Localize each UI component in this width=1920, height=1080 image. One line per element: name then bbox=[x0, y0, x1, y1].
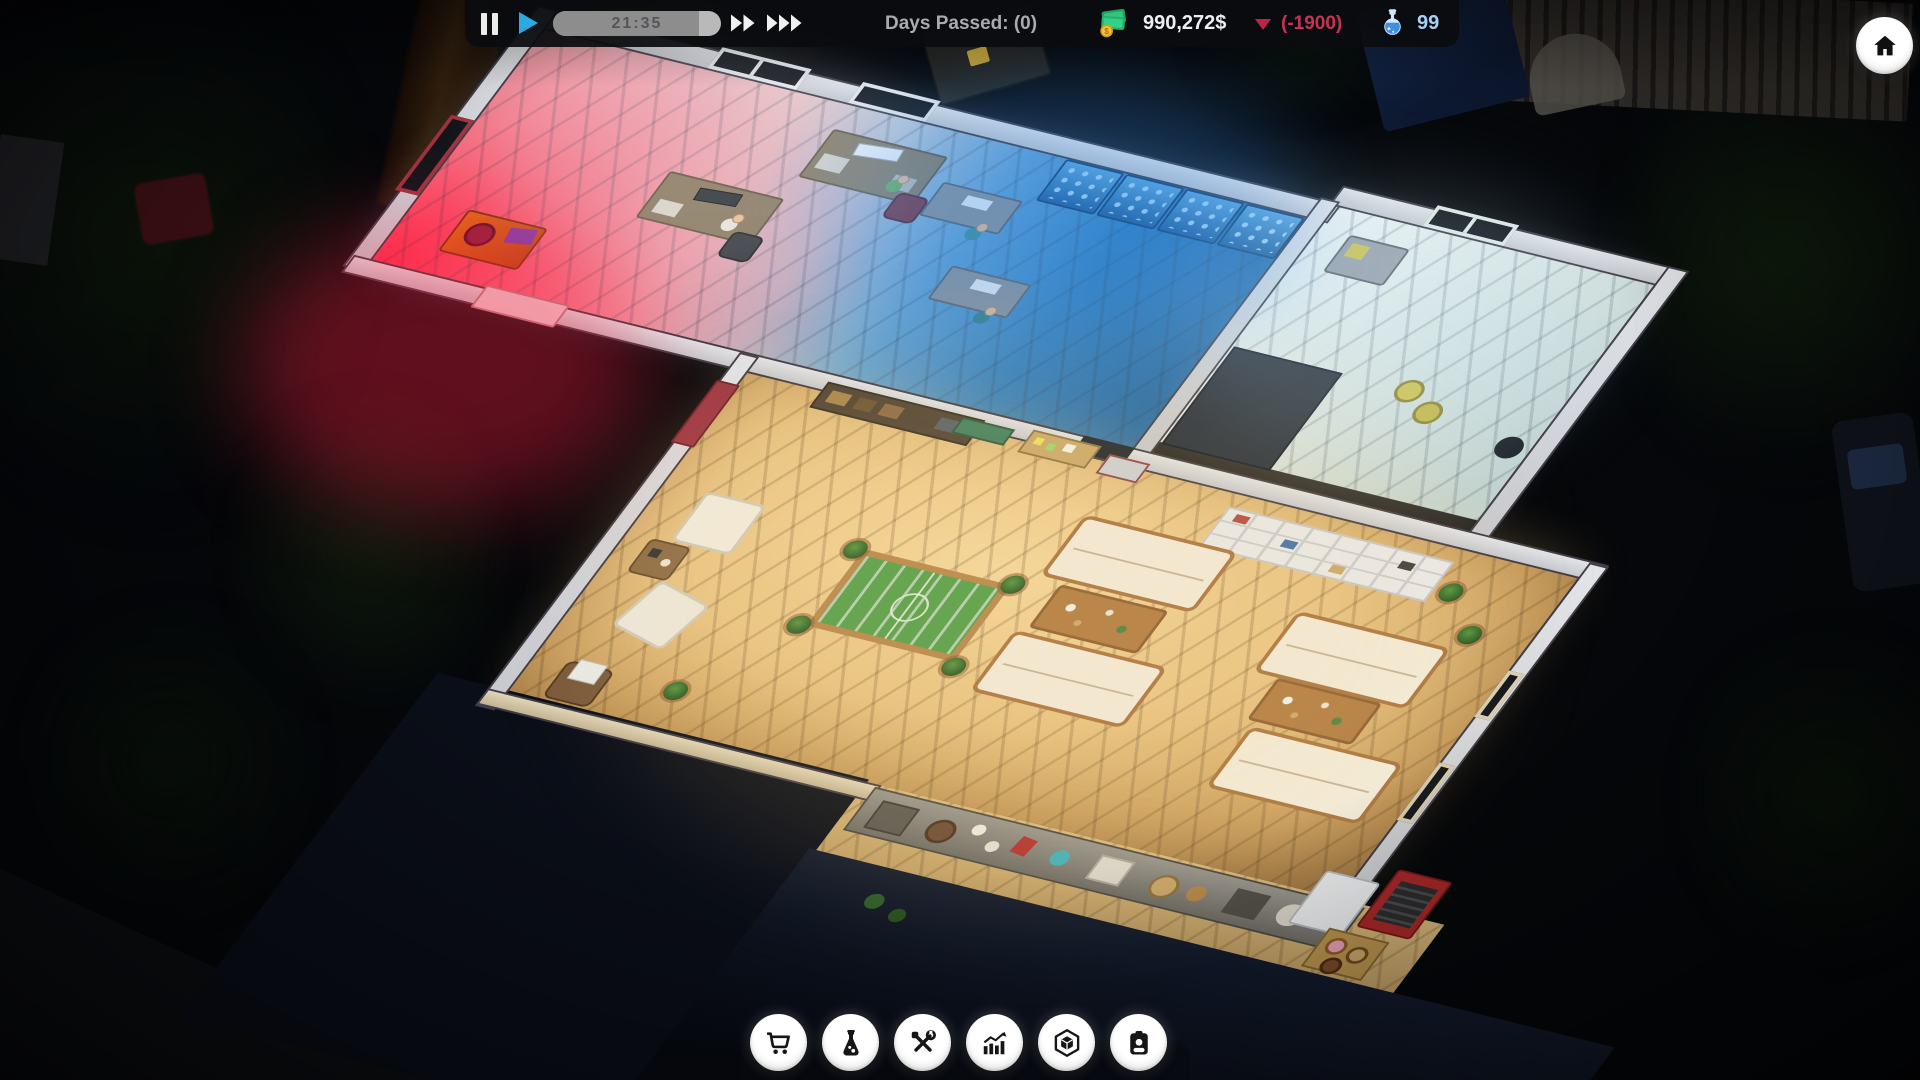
loss-triangle-icon bbox=[1255, 19, 1271, 30]
grill bbox=[133, 172, 215, 246]
wood-fence bbox=[1457, 0, 1913, 122]
pause-icon bbox=[481, 13, 487, 35]
shop-button[interactable] bbox=[750, 1014, 807, 1071]
game-viewport[interactable]: 21:35 Days Passed: (0) $ 990,272$ (-1900… bbox=[0, 0, 1920, 1080]
home-icon bbox=[1871, 32, 1899, 60]
home-button[interactable] bbox=[1856, 17, 1913, 74]
fast-forward-icon bbox=[729, 12, 759, 34]
chart-icon bbox=[980, 1028, 1010, 1058]
parked-car bbox=[1830, 411, 1920, 593]
research-button[interactable] bbox=[822, 1014, 879, 1071]
money-amount: 990,272$ bbox=[1143, 0, 1226, 47]
tools-icon bbox=[908, 1028, 938, 1058]
cart-icon bbox=[764, 1028, 794, 1058]
cube-icon bbox=[1052, 1028, 1082, 1058]
pause-button[interactable] bbox=[481, 13, 499, 35]
research-flask-icon bbox=[1379, 8, 1406, 39]
days-passed-label: Days Passed: (0) bbox=[885, 0, 1037, 47]
production-button[interactable] bbox=[1038, 1014, 1095, 1071]
fastest-forward-button[interactable] bbox=[765, 12, 805, 39]
top-hud-bar: 21:35 Days Passed: (0) $ 990,272$ (-1900… bbox=[465, 0, 1459, 47]
flask-icon bbox=[836, 1028, 866, 1058]
svg-text:$: $ bbox=[1104, 26, 1109, 36]
staff-button[interactable] bbox=[1110, 1014, 1167, 1071]
play-button[interactable] bbox=[519, 12, 538, 34]
research-points: 99 bbox=[1417, 0, 1439, 47]
money-change: (-1900) bbox=[1281, 0, 1342, 47]
money-icon: $ bbox=[1095, 8, 1131, 40]
fast-forward-button[interactable] bbox=[729, 12, 759, 39]
time-slider[interactable]: 21:35 bbox=[553, 11, 721, 36]
time-of-day: 21:35 bbox=[553, 11, 721, 36]
badge-icon bbox=[1124, 1028, 1154, 1058]
fastest-forward-icon bbox=[765, 12, 805, 34]
statistics-button[interactable] bbox=[966, 1014, 1023, 1071]
workshop-button[interactable] bbox=[894, 1014, 951, 1071]
